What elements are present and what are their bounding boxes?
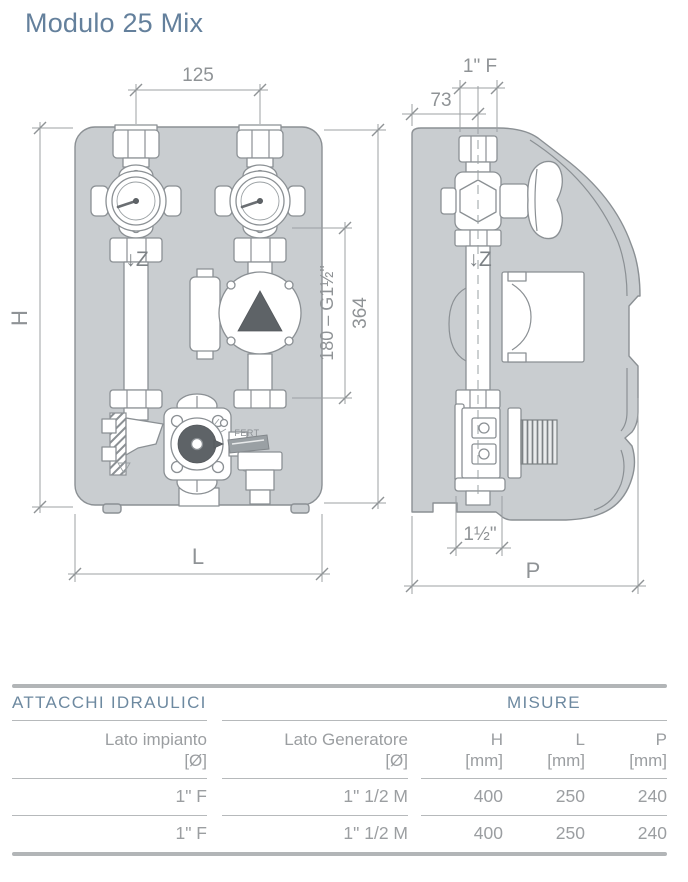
cell-p: 240 — [585, 786, 667, 807]
cell-h: 400 — [421, 823, 503, 844]
section-attacchi-idraulici: ATTACCHI IDRAULICI — [12, 693, 207, 713]
table-section-row: ATTACCHI IDRAULICI MISURE — [12, 688, 667, 721]
cell-p: 240 — [585, 823, 667, 844]
table-header-row: Lato impianto [Ø] Lato Generatore [Ø] H[… — [12, 721, 667, 779]
knurled-knob — [521, 420, 557, 464]
front-foot-left — [103, 504, 121, 513]
front-view: FERT ↓Z 125 — [7, 65, 386, 582]
cell-lato-impianto: 1" F — [12, 816, 207, 852]
dim-125: 125 — [182, 65, 214, 86]
col-header-p: P[mm] — [585, 729, 667, 772]
dim-P: P — [526, 558, 541, 583]
front-foot-right — [291, 504, 309, 513]
dim-180-g112: 180 – G1½" — [317, 265, 337, 360]
technical-drawing: FERT ↓Z 125 — [0, 40, 688, 665]
side-view: ↓Z 1" F — [402, 56, 646, 594]
flow-direction-side: ↓Z — [468, 248, 492, 271]
dim-L: L — [192, 544, 204, 569]
pump-terminal-box — [190, 277, 220, 351]
col-header-h: H[mm] — [421, 729, 503, 772]
cell-l: 250 — [503, 823, 585, 844]
page-title: Modulo 25 Mix — [25, 8, 203, 39]
cell-lato-generatore: 1" 1/2 M — [222, 779, 408, 816]
cell-h: 400 — [421, 786, 503, 807]
cell-lato-impianto: 1" F — [12, 779, 207, 816]
table-row: 1" F 1" 1/2 M 400 250 240 — [12, 779, 667, 816]
dim-73: 73 — [430, 90, 451, 111]
col-header-lato-impianto: Lato impianto [Ø] — [12, 721, 207, 779]
spec-table: ATTACCHI IDRAULICI MISURE Lato impianto … — [12, 684, 667, 856]
section-misure: MISURE — [507, 693, 581, 713]
col-header-lato-generatore: Lato Generatore [Ø] — [222, 721, 408, 779]
table-row: 1" F 1" 1/2 M 400 250 240 — [12, 816, 667, 852]
table-bottom-rule — [12, 852, 667, 856]
cell-l: 250 — [503, 786, 585, 807]
valve-handwheel — [528, 161, 563, 238]
dim-1-12: 1½" — [463, 524, 496, 545]
flow-direction-front: ↓Z — [125, 248, 149, 271]
dim-1-f: 1" F — [463, 56, 497, 77]
cell-lato-generatore: 1" 1/2 M — [222, 816, 408, 852]
dim-364: 364 — [350, 297, 371, 329]
dim-H: H — [7, 310, 32, 326]
col-header-l: L[mm] — [503, 729, 585, 772]
datasheet-page: Modulo 25 Mix — [0, 0, 688, 882]
